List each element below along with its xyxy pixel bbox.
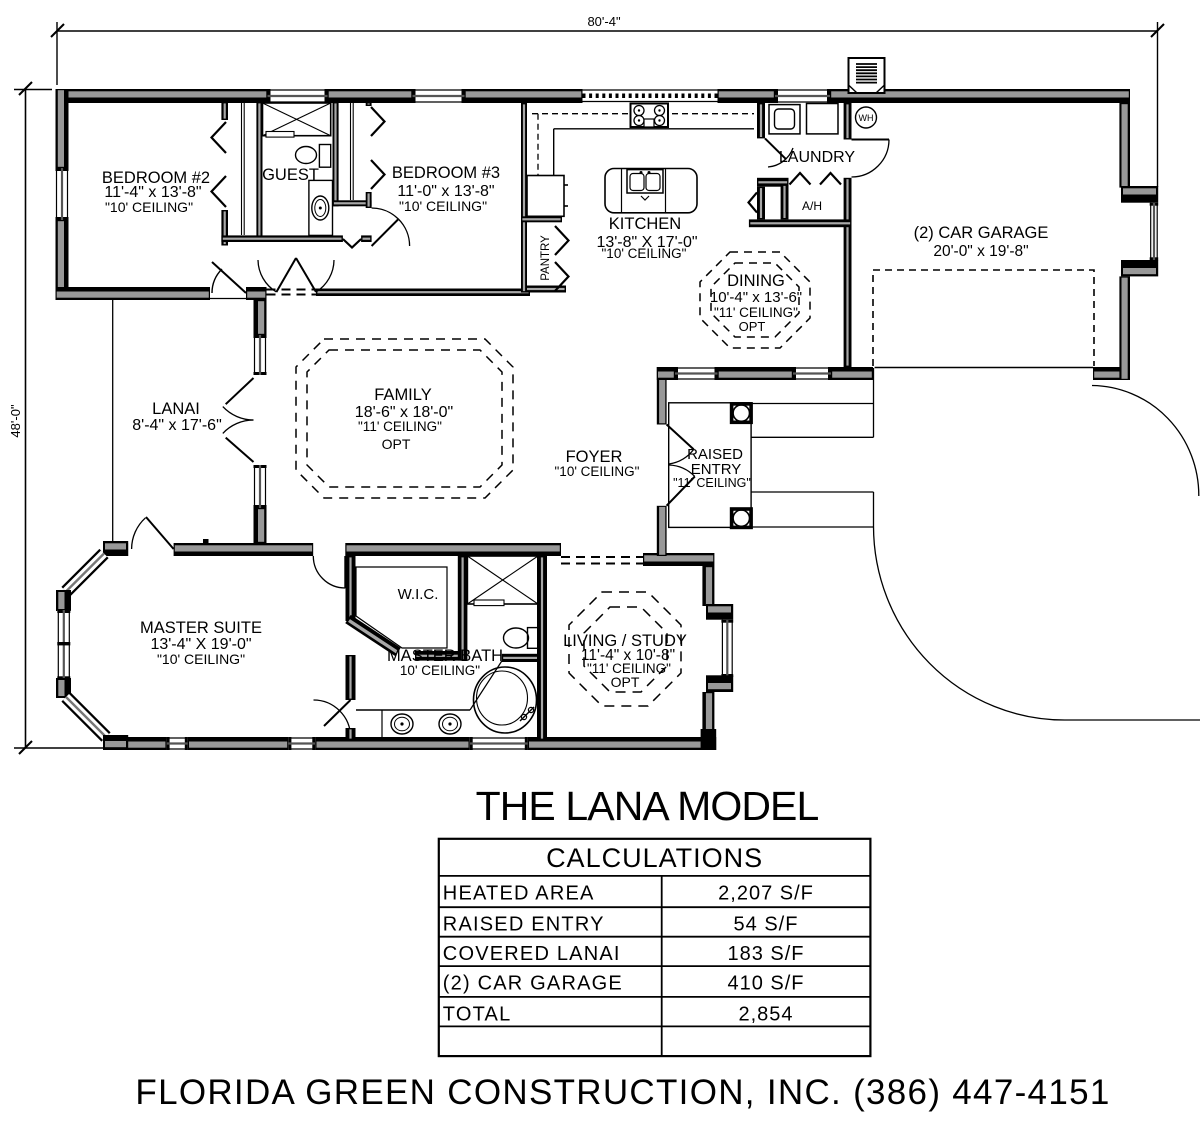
svg-text:8'-4" x 17'-6": 8'-4" x 17'-6" [132, 417, 222, 434]
svg-text:MASTER SUITE: MASTER SUITE [140, 619, 262, 637]
svg-text:"10' CEILING": "10' CEILING" [555, 464, 640, 479]
svg-text:FAMILY: FAMILY [374, 386, 431, 404]
svg-text:FLORIDA GREEN CONSTRUCTION, IN: FLORIDA GREEN CONSTRUCTION, INC. (386) 4… [135, 1073, 1110, 1112]
svg-text:LAUNDRY: LAUNDRY [779, 149, 856, 166]
svg-text:W.I.C.: W.I.C. [398, 586, 439, 603]
svg-text:HEATED AREA: HEATED AREA [443, 882, 595, 904]
svg-text:(2) CAR GARAGE: (2) CAR GARAGE [443, 973, 623, 995]
svg-text:OPT: OPT [382, 436, 411, 452]
svg-text:2,207 S/F: 2,207 S/F [718, 882, 814, 904]
svg-text:CALCULATIONS: CALCULATIONS [546, 843, 763, 873]
svg-text:"10' CEILING": "10' CEILING" [157, 651, 245, 667]
svg-text:183 S/F: 183 S/F [727, 943, 804, 965]
svg-text:2,854: 2,854 [738, 1003, 793, 1025]
svg-text:"11' CEILING": "11' CEILING" [714, 305, 798, 320]
svg-text:"11' CEILING": "11' CEILING" [358, 419, 442, 434]
svg-text:80'-4": 80'-4" [587, 14, 621, 29]
svg-text:"10' CEILING": "10' CEILING" [399, 198, 487, 214]
svg-text:10'-4" x 13'-6": 10'-4" x 13'-6" [710, 289, 802, 306]
svg-text:PANTRY: PANTRY [540, 235, 552, 281]
svg-text:"10' CEILING": "10' CEILING" [105, 199, 193, 215]
svg-text:54 S/F: 54 S/F [734, 914, 799, 936]
svg-text:TOTAL: TOTAL [443, 1003, 512, 1025]
svg-text:COVERED LANAI: COVERED LANAI [443, 943, 621, 965]
svg-text:OPT: OPT [611, 674, 640, 690]
svg-text:BEDROOM #3: BEDROOM #3 [392, 164, 500, 182]
svg-text:KITCHEN: KITCHEN [609, 215, 681, 233]
svg-text:WH: WH [859, 113, 874, 123]
svg-text:LANAI: LANAI [152, 400, 200, 418]
svg-text:OPT: OPT [739, 319, 766, 334]
svg-text:10' CEILING": 10' CEILING" [400, 663, 480, 678]
svg-text:410 S/F: 410 S/F [727, 973, 804, 995]
svg-text:"10' CEILING": "10' CEILING" [602, 246, 687, 261]
svg-text:20'-0" x 19'-8": 20'-0" x 19'-8" [933, 243, 1028, 260]
svg-text:(2) CAR GARAGE: (2) CAR GARAGE [914, 224, 1049, 242]
svg-text:THE LANA MODEL: THE LANA MODEL [476, 783, 819, 829]
svg-text:RAISED ENTRY: RAISED ENTRY [443, 914, 605, 936]
svg-text:GUEST: GUEST [262, 166, 319, 184]
svg-text:"11' CEILING": "11' CEILING" [673, 476, 751, 490]
svg-text:DINING: DINING [727, 272, 785, 290]
svg-text:A/H: A/H [802, 199, 822, 213]
svg-text:48'-0": 48'-0" [8, 404, 23, 438]
